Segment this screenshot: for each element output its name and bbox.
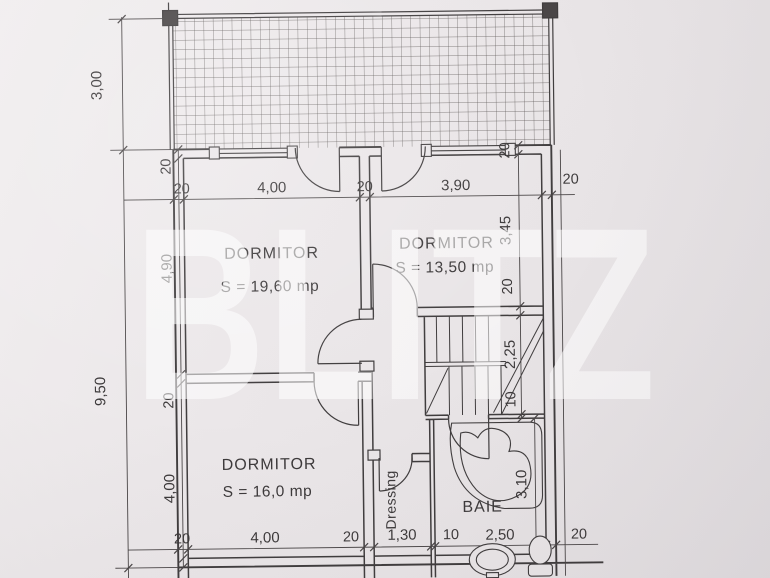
dim-top-4: 20 bbox=[562, 172, 578, 188]
sink bbox=[469, 543, 515, 578]
room-label-dressing: Dressing bbox=[382, 470, 399, 529]
room-label-baie: BAIE bbox=[462, 499, 503, 516]
dim-left-1: 4,90 bbox=[159, 254, 176, 283]
room-area-dormitor1: S = 19,60 mp bbox=[221, 278, 320, 296]
door-dormitor1-hall bbox=[317, 319, 362, 364]
room-label-dormitor3: DORMITOR bbox=[222, 456, 317, 474]
dim-bottom-2: 20 bbox=[343, 529, 359, 545]
dim-bottom-6: 20 bbox=[571, 526, 587, 542]
floor-plan-svg: 3,00 9,50 20 4,90 20 4,00 20 4,00 20 3,9… bbox=[0, 0, 770, 578]
dim-right-1: 3,45 bbox=[497, 216, 514, 245]
dim-top-0: 20 bbox=[174, 181, 190, 197]
floor-plan-photo: 3,00 9,50 20 4,90 20 4,00 20 4,00 20 3,9… bbox=[0, 0, 770, 578]
toilet bbox=[528, 536, 552, 576]
dim-right-2: 20 bbox=[500, 278, 516, 294]
dim-top-2: 20 bbox=[357, 179, 373, 195]
staircase bbox=[424, 315, 544, 415]
door-dormitor2-terrace bbox=[381, 146, 426, 191]
dim-terrace-depth: 3,00 bbox=[88, 71, 105, 100]
room-label-dormitor1: DORMITOR bbox=[224, 245, 319, 263]
dim-right-0: 20 bbox=[497, 142, 513, 158]
door-baie bbox=[449, 419, 489, 459]
room-label-dormitor2: DORMITOR bbox=[399, 235, 494, 253]
door-dormitor3-hall bbox=[314, 381, 359, 426]
dim-top-1: 4,00 bbox=[257, 179, 286, 196]
dim-left-0: 20 bbox=[158, 158, 174, 174]
room-area-dormitor3: S = 16,0 mp bbox=[223, 483, 313, 501]
terrace bbox=[162, 0, 559, 150]
dim-left-2: 20 bbox=[161, 392, 177, 408]
door-dormitor1-terrace bbox=[295, 147, 340, 192]
dim-right-3: 2,25 bbox=[502, 340, 519, 369]
room-area-dormitor2: S = 13,50 mp bbox=[395, 259, 494, 277]
dim-bottom-4: 10 bbox=[443, 527, 459, 543]
dim-bottom-1: 4,00 bbox=[250, 529, 279, 546]
dim-left-3: 4,00 bbox=[161, 474, 178, 503]
terrace-hatch bbox=[173, 14, 551, 150]
terrace-column-right bbox=[543, 3, 558, 18]
dim-top-3: 3,90 bbox=[441, 177, 470, 194]
dim-right-4: 10 bbox=[503, 391, 519, 407]
dim-baie-height: 3,10 bbox=[513, 470, 530, 499]
dim-total-height: 9,50 bbox=[92, 377, 109, 406]
dim-bottom-5: 2,50 bbox=[485, 526, 514, 543]
dim-bottom-0: 20 bbox=[174, 531, 190, 547]
